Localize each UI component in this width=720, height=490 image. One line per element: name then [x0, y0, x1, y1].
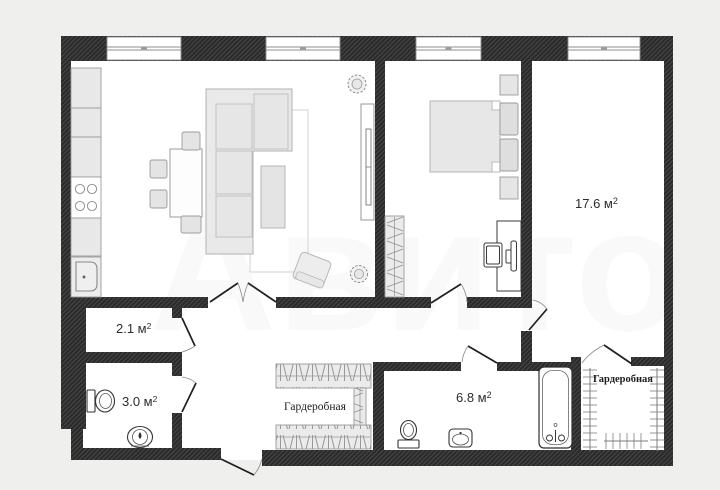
- svg-text:2.1 м2: 2.1 м2: [116, 321, 152, 336]
- svg-text:17.6 м2: 17.6 м2: [575, 196, 618, 211]
- svg-text:Гардеробная: Гардеробная: [284, 401, 347, 413]
- svg-text:Гардеробная: Гардеробная: [593, 374, 653, 385]
- svg-text:3.0 м2: 3.0 м2: [122, 394, 158, 409]
- svg-text:6.8 м2: 6.8 м2: [456, 390, 492, 405]
